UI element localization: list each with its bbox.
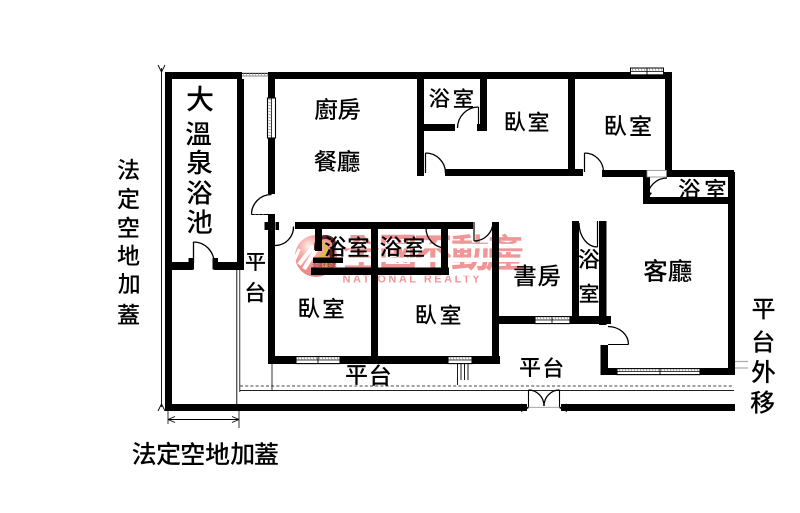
svg-text:NATIONAL REALTY: NATIONAL REALTY bbox=[343, 274, 483, 286]
